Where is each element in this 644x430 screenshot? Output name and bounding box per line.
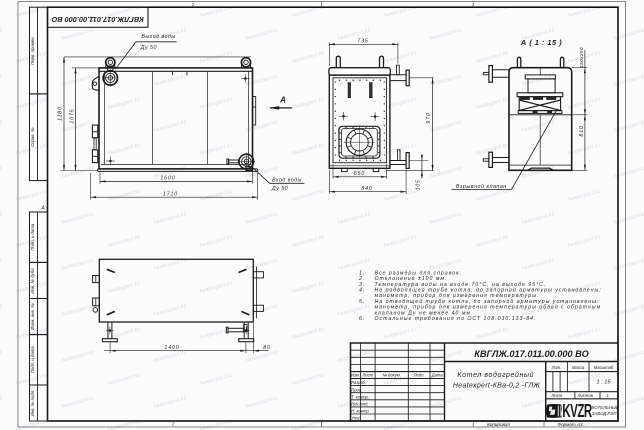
svg-text:1400: 1400 [164, 345, 179, 351]
svg-text:Листов: Листов [577, 393, 594, 398]
svg-text:Нач.отд.: Нач.отд. [351, 401, 368, 406]
svg-text:Лит.: Лит. [551, 365, 562, 370]
svg-text:4.: 4. [359, 288, 365, 294]
svg-text:КОТЕЛЬНЫЙ: КОТЕЛЬНЫЙ [592, 405, 620, 410]
svg-text:6.: 6. [359, 316, 365, 322]
svg-text:Н. контр.: Н. контр. [351, 409, 369, 414]
svg-text:Ду 50: Ду 50 [271, 186, 288, 192]
svg-text:КВГЛЖ.017.011.00.000 ВО: КВГЛЖ.017.011.00.000 ВО [51, 15, 143, 24]
svg-text:150х250: 150х250 [579, 47, 584, 68]
svg-text:80: 80 [263, 345, 271, 351]
svg-text:Котел водогрейный: Котел водогрейный [457, 371, 534, 379]
svg-text:А: А [279, 96, 286, 105]
svg-text:5.: 5. [359, 299, 365, 305]
svg-text:Подп. и дата: Подп. и дата [30, 223, 35, 251]
svg-text:Инв. № подл.: Инв. № подл. [30, 390, 35, 417]
svg-text:1: 1 [607, 393, 609, 398]
svg-text:Перв. примен.: Перв. примен. [30, 36, 35, 65]
svg-text:Подп. и дата: Подп. и дата [30, 346, 35, 374]
svg-text:Взам. инв. №: Взам. инв. № [30, 303, 35, 330]
svg-text:А: А [40, 206, 45, 212]
svg-text:650: 650 [354, 171, 365, 177]
svg-text:Вход воды: Вход воды [272, 177, 302, 183]
svg-text:Копировал: Копировал [487, 422, 510, 427]
svg-text:ЗАВОД РЭП: ЗАВОД РЭП [592, 411, 618, 416]
svg-text:Инв. № дубл.: Инв. № дубл. [30, 267, 35, 293]
svg-text:Лист: Лист [551, 393, 563, 398]
svg-text:2: 2 [171, 422, 175, 427]
svg-text:2: 2 [191, 2, 195, 7]
svg-text:А ( 1 : 15 ): А ( 1 : 15 ) [520, 38, 562, 47]
svg-text:105: 105 [416, 179, 422, 190]
svg-text:Heatexpert-КВа-0,2 -ГЛЖ: Heatexpert-КВа-0,2 -ГЛЖ [453, 382, 541, 389]
svg-text:1180: 1180 [58, 106, 64, 121]
svg-text:КВГЛЖ.017.011.00.000 ВО: КВГЛЖ.017.011.00.000 ВО [474, 349, 588, 359]
svg-text:Остальные требования по ОСТ 10: Остальные требования по ОСТ 108.030.133-… [375, 316, 537, 322]
svg-text:1600: 1600 [160, 176, 175, 182]
svg-text:Утв.: Утв. [351, 416, 360, 421]
svg-text:Масса: Масса [572, 365, 585, 370]
svg-text:Ду 50: Ду 50 [140, 45, 157, 51]
svg-text:Формат А3: Формат А3 [557, 422, 583, 427]
svg-text:810: 810 [579, 125, 585, 136]
svg-text:Справ. №: Справ. № [30, 127, 35, 147]
svg-text:Взрывной клапан: Взрывной клапан [456, 183, 507, 190]
svg-text:Пров.: Пров. [351, 387, 362, 392]
svg-text:970: 970 [426, 112, 432, 123]
svg-text:Выход воды: Выход воды [141, 34, 175, 40]
svg-text:Изм.: Изм. [351, 373, 360, 378]
svg-text:735: 735 [357, 39, 368, 45]
svg-text:1: 1 [472, 2, 475, 7]
svg-text:Т. контр.: Т. контр. [351, 394, 369, 399]
svg-text:№ докум.: № докум. [382, 373, 400, 378]
svg-text:1 : 15: 1 : 15 [597, 380, 612, 386]
svg-text:840: 840 [361, 186, 372, 192]
svg-text:Масштаб: Масштаб [594, 365, 614, 370]
svg-text:Лист: Лист [361, 373, 373, 378]
svg-text:Дата: Дата [431, 373, 444, 378]
svg-text:KVZR: KVZR [562, 401, 592, 421]
svg-text:Разраб.: Разраб. [351, 380, 366, 385]
svg-text:1075: 1075 [69, 108, 75, 123]
svg-text:1710: 1710 [163, 191, 178, 197]
svg-text:Подп.: Подп. [414, 373, 425, 378]
